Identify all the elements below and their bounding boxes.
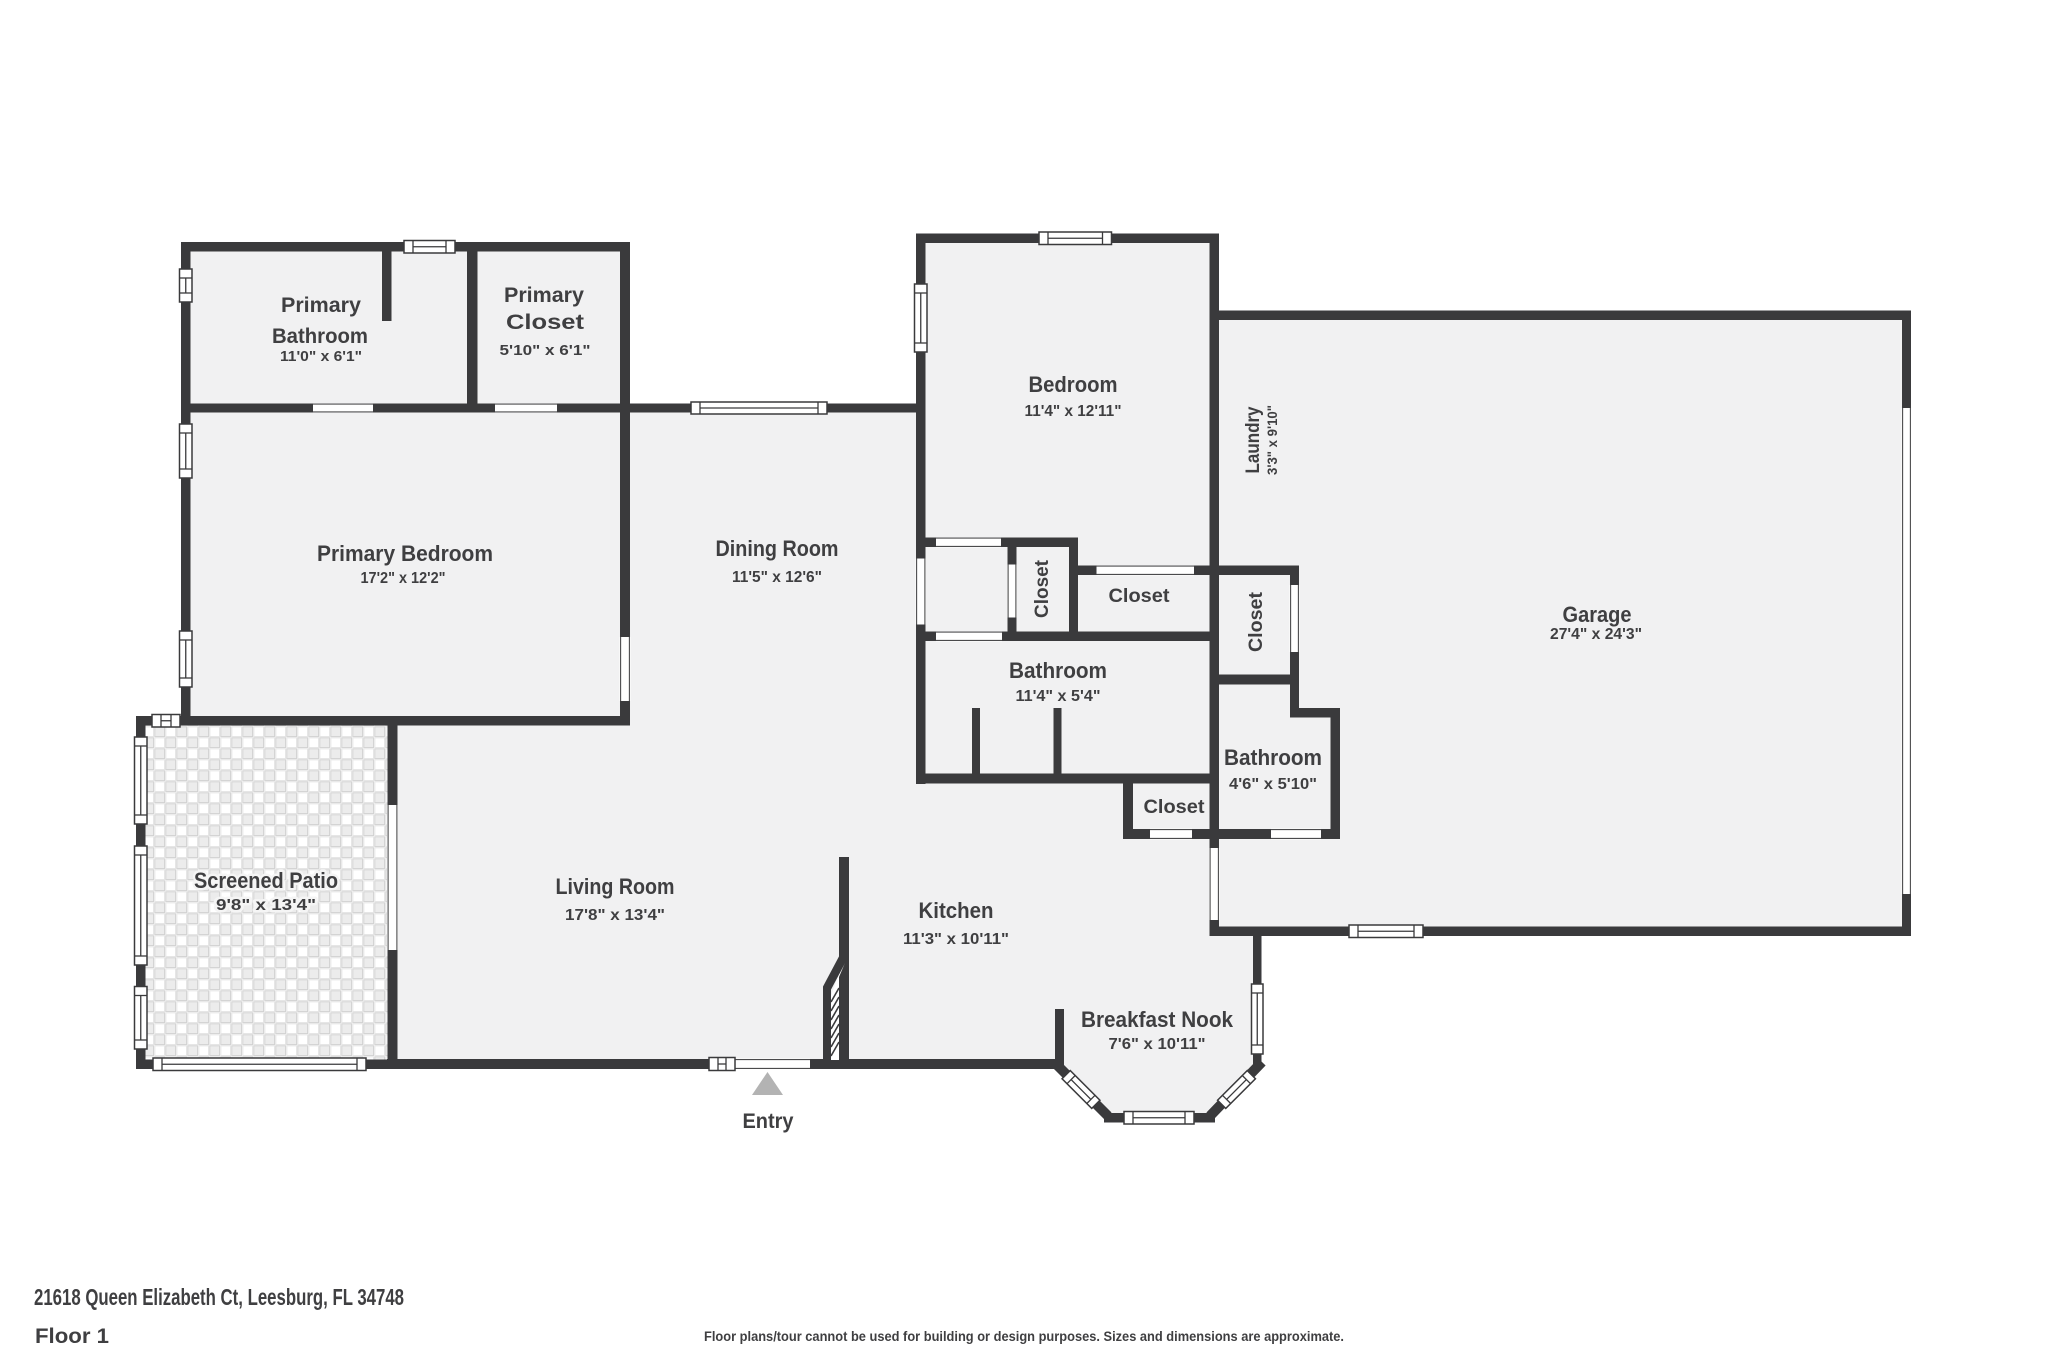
svg-text:Closet: Closet — [506, 310, 584, 334]
svg-text:Bathroom: Bathroom — [1009, 658, 1107, 683]
svg-text:Primary: Primary — [281, 293, 361, 317]
svg-text:7'6" x 10'11": 7'6" x 10'11" — [1109, 1036, 1206, 1053]
svg-text:Entry: Entry — [743, 1110, 794, 1133]
svg-text:27'4" x 24'3": 27'4" x 24'3" — [1550, 626, 1642, 643]
svg-text:Primary Bedroom: Primary Bedroom — [317, 541, 493, 566]
svg-text:Closet: Closet — [1246, 591, 1267, 652]
svg-text:Living Room: Living Room — [556, 874, 675, 899]
svg-text:11'4" x 5'4": 11'4" x 5'4" — [1016, 688, 1101, 705]
svg-text:Primary: Primary — [504, 283, 584, 307]
svg-text:Breakfast Nook: Breakfast Nook — [1081, 1007, 1233, 1032]
svg-text:Closet: Closet — [1144, 797, 1206, 818]
svg-text:5'10" x 6'1": 5'10" x 6'1" — [500, 342, 591, 359]
svg-text:Closet: Closet — [1109, 586, 1171, 607]
svg-text:11'5" x 12'6": 11'5" x 12'6" — [732, 569, 822, 586]
svg-text:Bathroom: Bathroom — [272, 324, 368, 348]
svg-text:Floor 1: Floor 1 — [35, 1325, 109, 1348]
svg-text:11'4" x 12'11": 11'4" x 12'11" — [1025, 403, 1122, 420]
svg-text:21618 Queen Elizabeth Ct, Lees: 21618 Queen Elizabeth Ct, Leesburg, FL 3… — [34, 1284, 404, 1310]
svg-text:Dining Room: Dining Room — [716, 536, 839, 561]
svg-text:Screened Patio: Screened Patio — [194, 868, 338, 893]
svg-text:Garage: Garage — [1563, 602, 1632, 627]
svg-text:4'6" x 5'10": 4'6" x 5'10" — [1229, 776, 1317, 793]
svg-text:11'0" x 6'1": 11'0" x 6'1" — [280, 348, 362, 365]
svg-text:9'8" x 13'4": 9'8" x 13'4" — [216, 897, 316, 914]
svg-text:17'8" x 13'4": 17'8" x 13'4" — [565, 907, 665, 924]
svg-text:Floor plans/tour cannot be use: Floor plans/tour cannot be used for buil… — [704, 1328, 1344, 1344]
svg-text:11'3" x 10'11": 11'3" x 10'11" — [903, 931, 1009, 948]
svg-text:Bathroom: Bathroom — [1224, 745, 1322, 770]
svg-text:Closet: Closet — [1032, 559, 1053, 618]
svg-text:Bedroom: Bedroom — [1029, 372, 1118, 397]
svg-text:Kitchen: Kitchen — [919, 898, 994, 923]
svg-text:3'3" x 9'10": 3'3" x 9'10" — [1264, 405, 1280, 475]
svg-text:17'2" x 12'2": 17'2" x 12'2" — [361, 570, 446, 587]
svg-text:Laundry: Laundry — [1243, 406, 1264, 473]
